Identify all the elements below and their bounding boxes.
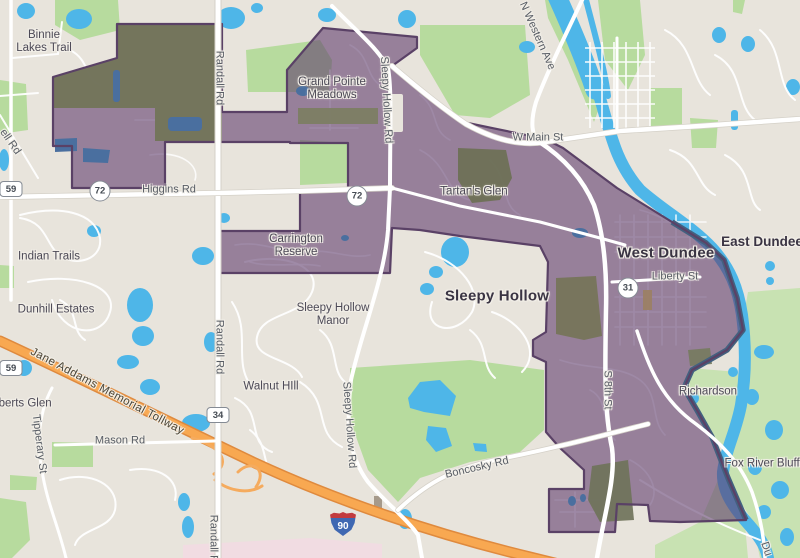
- map-render: [0, 0, 800, 558]
- map-canvas[interactable]: Binnie Lakes TrailGrand Pointe MeadowsTa…: [0, 0, 800, 558]
